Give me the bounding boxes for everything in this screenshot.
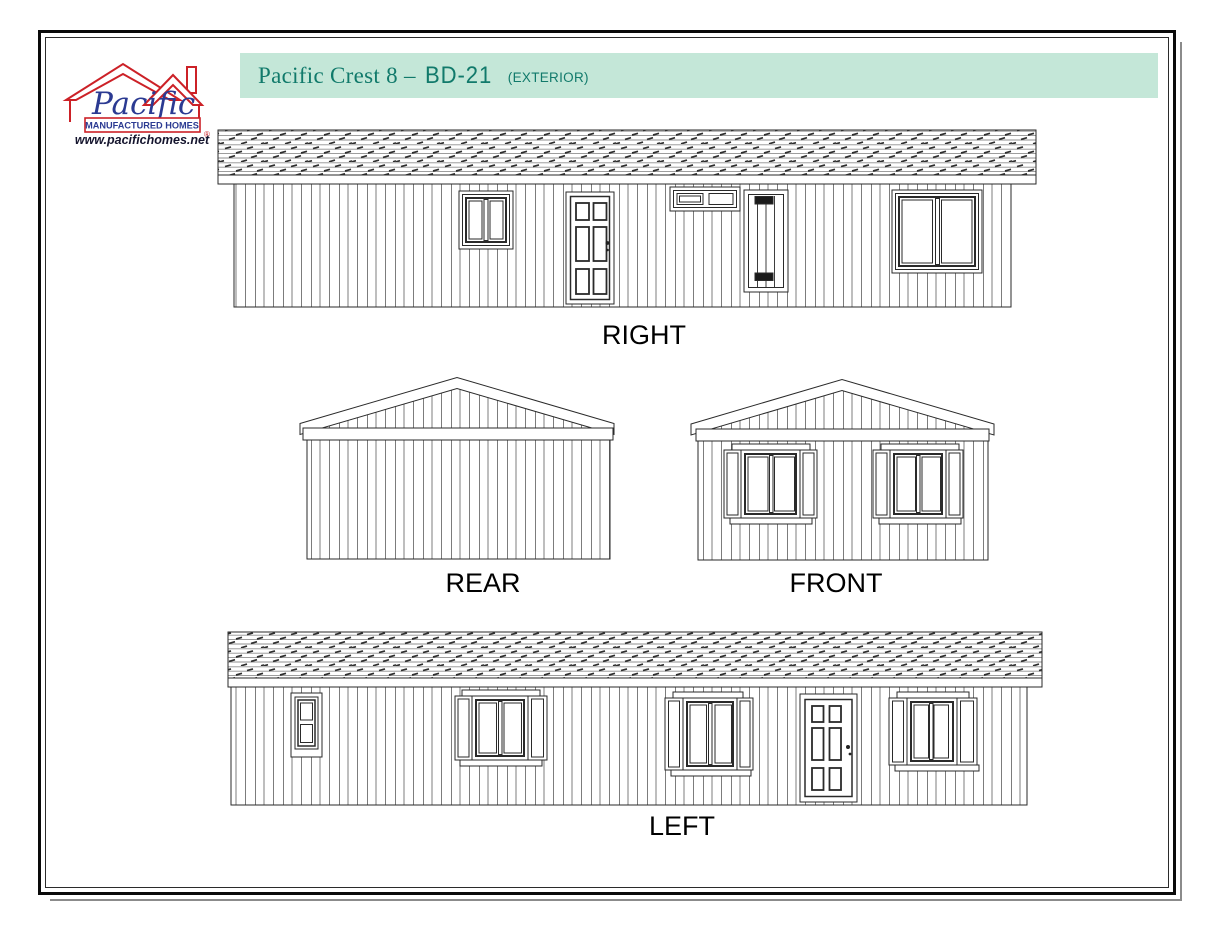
rear-eave-band [303,428,613,440]
front-window-1 [724,444,817,524]
left-window-small [291,693,322,757]
door-knob [606,241,610,245]
left-window-1 [455,690,547,766]
rear-wall-siding [307,440,610,559]
door-knob [846,745,850,749]
vent-grille [755,273,773,281]
front-window-2 [873,444,963,524]
right-entry-door [566,192,614,304]
left-elevation-label: LEFT [649,811,715,842]
right-utility-door [744,190,788,292]
right-elevation-label: RIGHT [602,320,686,351]
left-elevation [228,632,1042,805]
right-roof-shingles [218,130,1036,175]
vent-grille [755,197,773,205]
left-roof-shingles [228,632,1042,678]
left-window-3 [889,692,979,771]
left-window-2 [665,692,753,776]
elevations-drawing [0,0,1214,938]
front-eave-band [696,429,989,441]
front-elevation [691,380,994,561]
left-roof-fascia [228,678,1042,687]
front-elevation-label: FRONT [790,568,883,599]
left-entry-door [800,694,857,802]
right-window-small [459,191,513,249]
right-vent-window [670,187,740,211]
right-elevation [218,130,1036,307]
rear-elevation [300,378,614,560]
right-window-large [892,190,982,273]
rear-elevation-label: REAR [445,568,520,599]
right-roof-fascia [218,175,1036,184]
